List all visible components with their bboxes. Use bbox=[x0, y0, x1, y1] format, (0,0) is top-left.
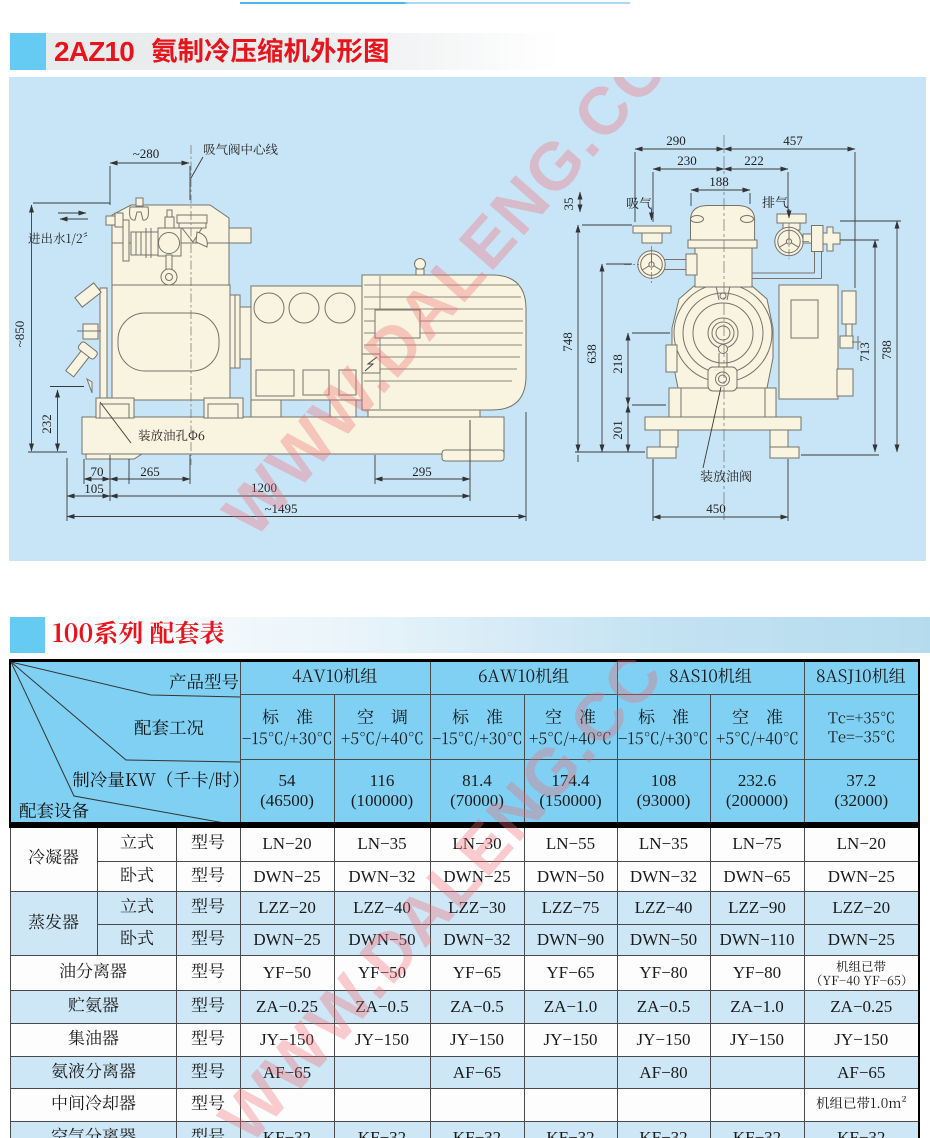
svg-text:222: 222 bbox=[744, 153, 764, 168]
svg-text:230: 230 bbox=[677, 153, 697, 168]
svg-text:~280: ~280 bbox=[133, 146, 160, 161]
svg-text:265: 265 bbox=[140, 464, 160, 479]
svg-text:788: 788 bbox=[879, 340, 894, 360]
svg-text:638: 638 bbox=[584, 344, 599, 364]
svg-text:457: 457 bbox=[783, 133, 803, 148]
svg-text:218: 218 bbox=[610, 354, 625, 374]
svg-text:295: 295 bbox=[412, 464, 432, 479]
svg-text:450: 450 bbox=[706, 501, 726, 516]
svg-text:290: 290 bbox=[666, 133, 686, 148]
svg-text:70: 70 bbox=[91, 464, 104, 479]
svg-text:188: 188 bbox=[709, 174, 729, 189]
svg-text:748: 748 bbox=[560, 332, 575, 352]
svg-text:232: 232 bbox=[39, 414, 54, 434]
svg-text:713: 713 bbox=[857, 342, 872, 362]
svg-text:105: 105 bbox=[84, 481, 104, 496]
svg-text:201: 201 bbox=[610, 420, 625, 440]
svg-text:~850: ~850 bbox=[12, 321, 27, 348]
